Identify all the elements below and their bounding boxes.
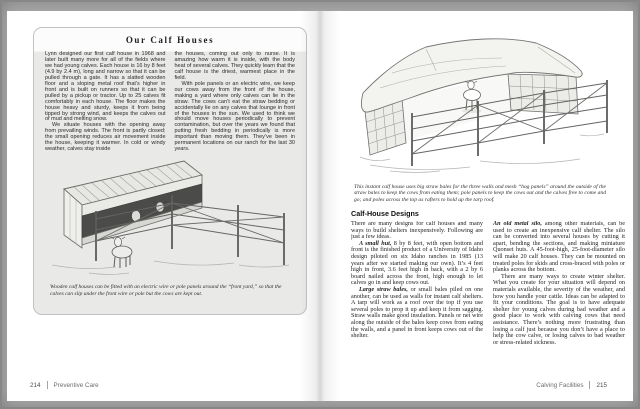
- wooden-calf-house-illustration: [34, 153, 306, 283]
- paragraph: Large straw bales, or small bales piled …: [351, 287, 483, 340]
- body-column-1: There are many designs for calf houses a…: [351, 221, 483, 379]
- body-column-2: An old metal silo, among other materials…: [493, 221, 625, 379]
- paragraph: There are many designs for calf houses a…: [351, 221, 483, 241]
- body-text-columns: There are many designs for calf houses a…: [351, 221, 625, 379]
- left-page: Our Calf Houses Lynn designed our first …: [7, 11, 320, 401]
- left-page-footer: 214 Preventive Care: [30, 381, 99, 389]
- paragraph-lead-in: An old metal silo,: [493, 221, 545, 227]
- paragraph: the houses, coming out only to nurse. It…: [175, 52, 296, 82]
- paragraph-lead-in: Large straw bales,: [359, 286, 411, 293]
- box-caption: Wooden calf houses can be fitted with an…: [50, 284, 290, 300]
- paragraph-lead-in: A small hut,: [359, 240, 394, 247]
- illustration-caption: This instant calf house uses big straw b…: [354, 184, 606, 206]
- paragraph: There are many ways to create winter she…: [493, 274, 625, 347]
- paragraph: With pole panels or an electric wire, we…: [175, 82, 296, 152]
- calf-in-yard: [111, 237, 132, 268]
- left-section-label: Preventive Care: [54, 382, 99, 389]
- right-page-footer: Calving Facilities 215: [536, 381, 607, 389]
- section-heading: Calf-House Designs: [351, 209, 419, 218]
- box-text-columns: Lynn designed our first calf house in 19…: [34, 48, 306, 152]
- our-calf-houses-box: Our Calf Houses Lynn designed our first …: [33, 27, 307, 315]
- right-page-number: 215: [596, 382, 607, 389]
- paragraph: An old metal silo, among other materials…: [493, 221, 625, 274]
- box-column-2: the houses, coming out only to nurse. It…: [175, 52, 296, 152]
- straw-bale-shelter-illustration: [330, 13, 622, 175]
- book-spread: Our Calf Houses Lynn designed our first …: [0, 0, 640, 409]
- right-section-label: Calving Facilities: [536, 382, 583, 389]
- paragraph: Lynn designed our first calf house in 19…: [45, 52, 166, 123]
- paragraph: We situate houses with the opening away …: [45, 123, 166, 152]
- box-column-1: Lynn designed our first calf house in 19…: [45, 52, 166, 152]
- box-title: Our Calf Houses: [34, 28, 306, 48]
- footer-divider: [47, 381, 48, 389]
- footer-divider: [589, 381, 590, 389]
- right-page: This instant calf house uses big straw b…: [320, 11, 633, 401]
- left-page-number: 214: [30, 382, 41, 389]
- paragraph: A small hut, 8 by 8 feet, with open bott…: [351, 241, 483, 287]
